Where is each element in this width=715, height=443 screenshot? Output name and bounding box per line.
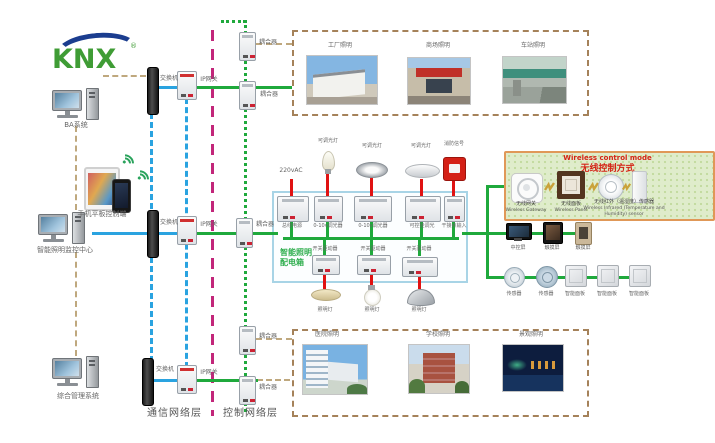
load-line-lamp1 bbox=[323, 274, 326, 289]
smart-panel3-label: 智能面板 bbox=[623, 292, 655, 298]
wireless-signal-icon bbox=[544, 181, 555, 194]
central-screen-stand bbox=[514, 238, 522, 241]
line-coupler bbox=[239, 326, 256, 355]
school-photo bbox=[408, 344, 470, 394]
lan-pc2-switch2 bbox=[92, 232, 182, 235]
sensor-icon bbox=[504, 267, 525, 288]
candle-bulb-icon bbox=[322, 151, 335, 171]
tower bbox=[86, 88, 99, 120]
mobile-clients-label: 手机平板控制端 bbox=[62, 210, 142, 218]
switch-actuator1-label: 开关驱动器 bbox=[303, 247, 347, 253]
cabinet-name-line2: 配电箱 bbox=[280, 258, 312, 268]
tan-link-pc1-pc2 bbox=[75, 126, 77, 210]
ip-gateway bbox=[177, 365, 197, 394]
smart-panel-icon bbox=[597, 265, 619, 287]
knx-logo-text: KNX bbox=[52, 44, 116, 75]
tan-link-pc2-pc3 bbox=[75, 252, 77, 356]
ethernet-switch bbox=[147, 67, 159, 115]
dim-light1-label: 可调光灯 bbox=[308, 139, 348, 145]
load-line-fire bbox=[452, 180, 455, 197]
switch1-label: 交换机 bbox=[156, 76, 182, 83]
candle-bulb-base bbox=[325, 169, 331, 174]
gateway1-label: IP网关 bbox=[195, 77, 223, 84]
lighting-monitor-label: 智能照明监控中心 bbox=[10, 246, 120, 254]
fire-alarm-icon bbox=[443, 157, 466, 181]
mall-photo bbox=[407, 57, 471, 105]
lamp3-label: 照明灯 bbox=[403, 308, 435, 314]
app-school-label: 学校照明 bbox=[414, 332, 462, 339]
control-layer-label: 控制网络层 bbox=[223, 404, 278, 419]
line-coupler bbox=[239, 32, 256, 61]
landscape-photo bbox=[502, 344, 564, 392]
dimmer-module-1 bbox=[314, 196, 343, 222]
switch2-label: 交换机 bbox=[156, 220, 182, 227]
coupler5-label: 耦合器 bbox=[255, 385, 281, 392]
wall-lamp-icon bbox=[407, 289, 435, 306]
communication-layer-label: 通信网络层 bbox=[147, 404, 202, 419]
wireless-gateway-icon bbox=[511, 173, 543, 203]
hospital-photo bbox=[302, 344, 368, 395]
wireless-panel-icon bbox=[557, 171, 585, 199]
switch-actuator2-label: 开关驱动器 bbox=[351, 247, 395, 253]
knx-logo-registered-mark: ® bbox=[130, 42, 137, 50]
switch-actuator-module bbox=[402, 257, 438, 277]
mains-label: 220vAC bbox=[272, 168, 310, 175]
touch-screen-icon bbox=[543, 222, 563, 244]
ba-system-label: BA系统 bbox=[46, 121, 106, 129]
smartphone bbox=[112, 179, 131, 213]
switch-actuator-module bbox=[312, 255, 340, 275]
dim-light2-label: 可调光灯 bbox=[352, 144, 392, 150]
ba-system-computer bbox=[52, 90, 100, 122]
dimmer-module-2 bbox=[354, 196, 392, 222]
sensor1-label: 传感器 bbox=[500, 292, 528, 298]
management-label: 综合管理系统 bbox=[40, 392, 116, 400]
mains-line bbox=[290, 179, 293, 197]
switch3-label: 交换机 bbox=[152, 367, 178, 374]
app-station-label: 车站照明 bbox=[509, 43, 557, 50]
ethernet-switch bbox=[147, 210, 159, 258]
load-line-dim2 bbox=[370, 178, 373, 197]
thyristor-dimmer-module bbox=[405, 196, 441, 222]
knx-bus-top-stub bbox=[221, 20, 246, 23]
dry-contact-label: 干接点输入 bbox=[434, 224, 474, 230]
central-screen-label: 中控屏 bbox=[502, 246, 534, 252]
lamp1-label: 照明灯 bbox=[309, 308, 341, 314]
bulb-lamp-icon bbox=[364, 289, 381, 306]
app-factory-label: 工厂照明 bbox=[316, 43, 364, 50]
gateway3-label: IP网关 bbox=[195, 370, 223, 377]
touch-screen-icon bbox=[575, 222, 592, 245]
wifi-icon bbox=[129, 167, 152, 190]
fire-signal-label: 消防信号 bbox=[434, 142, 474, 148]
management-computer bbox=[52, 358, 100, 390]
dry-contact-module bbox=[444, 196, 465, 222]
smart-panel2-label: 智能面板 bbox=[591, 292, 623, 298]
app-hospital-label: 医院照明 bbox=[303, 332, 351, 339]
factory-photo bbox=[306, 55, 378, 105]
wireless-sensor-en: Wireless Infrared (Temperature and Humid… bbox=[578, 206, 670, 217]
tower bbox=[86, 356, 99, 388]
flat-lamp-icon bbox=[311, 289, 341, 301]
touch-screen2-label: 触摸屏 bbox=[569, 246, 597, 252]
touch-screen1-label: 触摸屏 bbox=[538, 246, 566, 252]
smart-panel-icon bbox=[565, 265, 587, 287]
bulb-lamp-base bbox=[368, 285, 375, 290]
ethernet-switch bbox=[142, 358, 154, 406]
lamp2-label: 照明灯 bbox=[356, 308, 388, 314]
wireless-sensor-zh: 无线红外（温湿度）传感器 bbox=[576, 200, 672, 206]
app-landscape-label: 景观照明 bbox=[507, 332, 555, 339]
monitor bbox=[52, 90, 82, 111]
line-coupler bbox=[239, 81, 256, 110]
line-coupler bbox=[239, 376, 256, 405]
knx-logo: KNX ® bbox=[52, 30, 148, 86]
line-coupler bbox=[236, 218, 253, 248]
station-photo bbox=[502, 56, 567, 104]
wireless-gateway-zh: 无线网关 bbox=[502, 202, 550, 208]
downlight-icon bbox=[356, 162, 388, 178]
smart-panel-icon bbox=[629, 265, 651, 287]
sensor-icon bbox=[536, 266, 558, 288]
bus-power-module bbox=[277, 196, 309, 222]
lighting-monitor-computer bbox=[38, 214, 86, 246]
smart-panel1-label: 智能面板 bbox=[559, 292, 591, 298]
app-mall-label: 商场照明 bbox=[414, 43, 462, 50]
coupler2-label: 耦合器 bbox=[256, 92, 282, 99]
knx-system-diagram: KNX ® BA系统 手机平板控制端 智能照明监控中心 综合管理系统 交换机 I… bbox=[0, 0, 715, 443]
load-line-dim3 bbox=[420, 179, 423, 197]
coupler4-label: 耦合器 bbox=[255, 334, 281, 341]
switch-actuator-module bbox=[357, 255, 391, 275]
bus-cabinet-to-right bbox=[462, 232, 488, 235]
wireless-signal-icon bbox=[622, 182, 631, 193]
load-line-dim1 bbox=[326, 174, 329, 197]
ceiling-lamp-icon bbox=[405, 164, 440, 178]
load-line-lamp3 bbox=[418, 276, 421, 289]
wireless-ir-sensor-icon bbox=[598, 174, 624, 200]
dimmer2-label: 0-10v调光器 bbox=[350, 224, 396, 230]
coupler1-label: 耦合器 bbox=[255, 40, 281, 47]
bus-screen-row bbox=[486, 232, 580, 235]
sensor2-label: 传感器 bbox=[532, 292, 560, 298]
gateway2-label: IP网关 bbox=[195, 222, 223, 229]
switch-actuator3-label: 开关驱动器 bbox=[397, 247, 441, 253]
monitor bbox=[52, 358, 82, 379]
dimmer1-label: 0-10v调光器 bbox=[305, 224, 351, 230]
tan-link-coupler5-photos bbox=[257, 379, 290, 381]
